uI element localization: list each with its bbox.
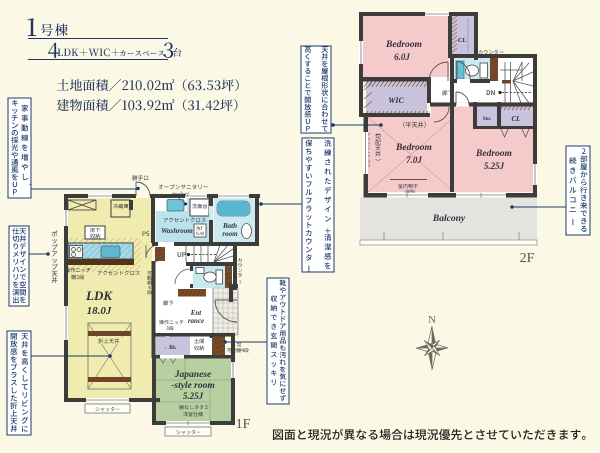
svg-text:-style room: -style room bbox=[171, 381, 215, 391]
svg-text:18.0J: 18.0J bbox=[87, 305, 112, 317]
svg-text:Bedroom: Bedroom bbox=[385, 40, 422, 50]
svg-text:rance: rance bbox=[188, 317, 204, 325]
svg-text:Bedroom: Bedroom bbox=[395, 143, 432, 153]
svg-text:Washroom: Washroom bbox=[161, 227, 193, 235]
svg-text:Bath: Bath bbox=[222, 222, 237, 230]
svg-text:CL: CL bbox=[458, 37, 466, 44]
svg-text:irodori: irodori bbox=[172, 192, 189, 198]
svg-text:2F: 2F bbox=[520, 251, 535, 266]
svg-text:room: room bbox=[222, 230, 238, 238]
svg-text:Japanese: Japanese bbox=[174, 370, 212, 380]
svg-text:Ent: Ent bbox=[190, 309, 203, 317]
svg-text:6.0J: 6.0J bbox=[394, 52, 410, 62]
svg-text:5.25J: 5.25J bbox=[183, 391, 204, 401]
svg-text:7.0J: 7.0J bbox=[406, 155, 422, 165]
svg-text:WIC: WIC bbox=[388, 96, 404, 105]
svg-text:5.25J: 5.25J bbox=[484, 161, 505, 171]
svg-text:CL: CL bbox=[512, 115, 521, 123]
svg-text:Sto.: Sto. bbox=[483, 116, 492, 122]
svg-text:N: N bbox=[428, 315, 436, 326]
svg-text:LDK: LDK bbox=[85, 288, 113, 303]
svg-text:1F: 1F bbox=[236, 417, 251, 432]
svg-text:Balcony: Balcony bbox=[432, 214, 466, 224]
svg-text:Bedroom: Bedroom bbox=[475, 149, 512, 159]
